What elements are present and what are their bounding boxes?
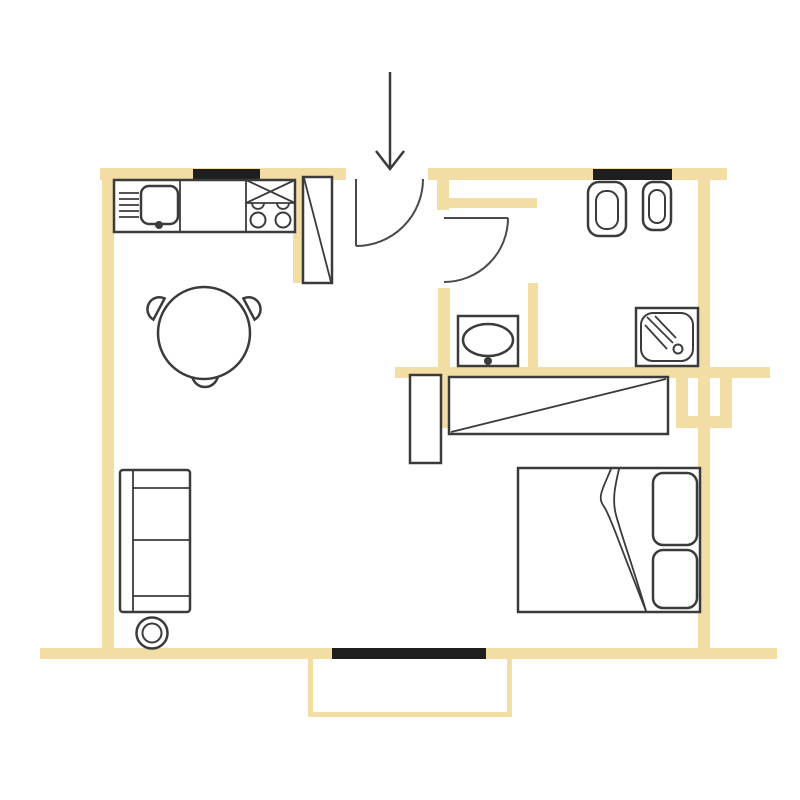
sink-tap-icon: [155, 221, 163, 229]
wall-top-right: [428, 168, 727, 180]
kitchen-sink-icon: [141, 186, 178, 224]
wall-left: [102, 180, 114, 648]
window-toilet: [593, 169, 672, 180]
wall-bath-northwest: [449, 198, 537, 208]
floor-plan-page: [0, 0, 800, 800]
entrance: [356, 72, 423, 246]
sofa-icon: [120, 470, 190, 612]
shaft-left-stub: [676, 378, 688, 416]
round-dining-table-icon: [158, 287, 250, 379]
balcony-rail-front: [308, 712, 512, 717]
entrance-door-swing-arc: [356, 179, 423, 246]
pillow-2-icon: [653, 550, 697, 608]
bedroom: [518, 468, 700, 612]
wall-bath-west-stub: [437, 180, 449, 210]
bathroom-door-swing-arc: [444, 218, 508, 282]
small-cabinet-icon: [410, 375, 441, 463]
floor-plan-canvas: [0, 0, 800, 800]
balcony-rail-right: [507, 658, 512, 716]
stool-outer-icon: [137, 618, 168, 649]
window-balcony-door: [332, 648, 486, 659]
bathroom-door: [444, 218, 508, 282]
washbasin-icon: [458, 316, 518, 366]
storage: [410, 375, 668, 463]
living-area: [120, 287, 261, 649]
basin-bowl: [463, 324, 513, 356]
basin-tap-icon: [484, 357, 492, 365]
balcony: [308, 658, 512, 717]
balcony-rail-left: [308, 658, 313, 716]
pillow-1-icon: [653, 473, 697, 545]
shaft-bottom: [676, 416, 732, 428]
window-kitchen: [193, 169, 260, 180]
wall-basin-niche-east: [528, 283, 538, 378]
bathroom: [458, 182, 698, 366]
shower-icon: [636, 308, 698, 366]
shaft-right-stub: [720, 378, 732, 416]
